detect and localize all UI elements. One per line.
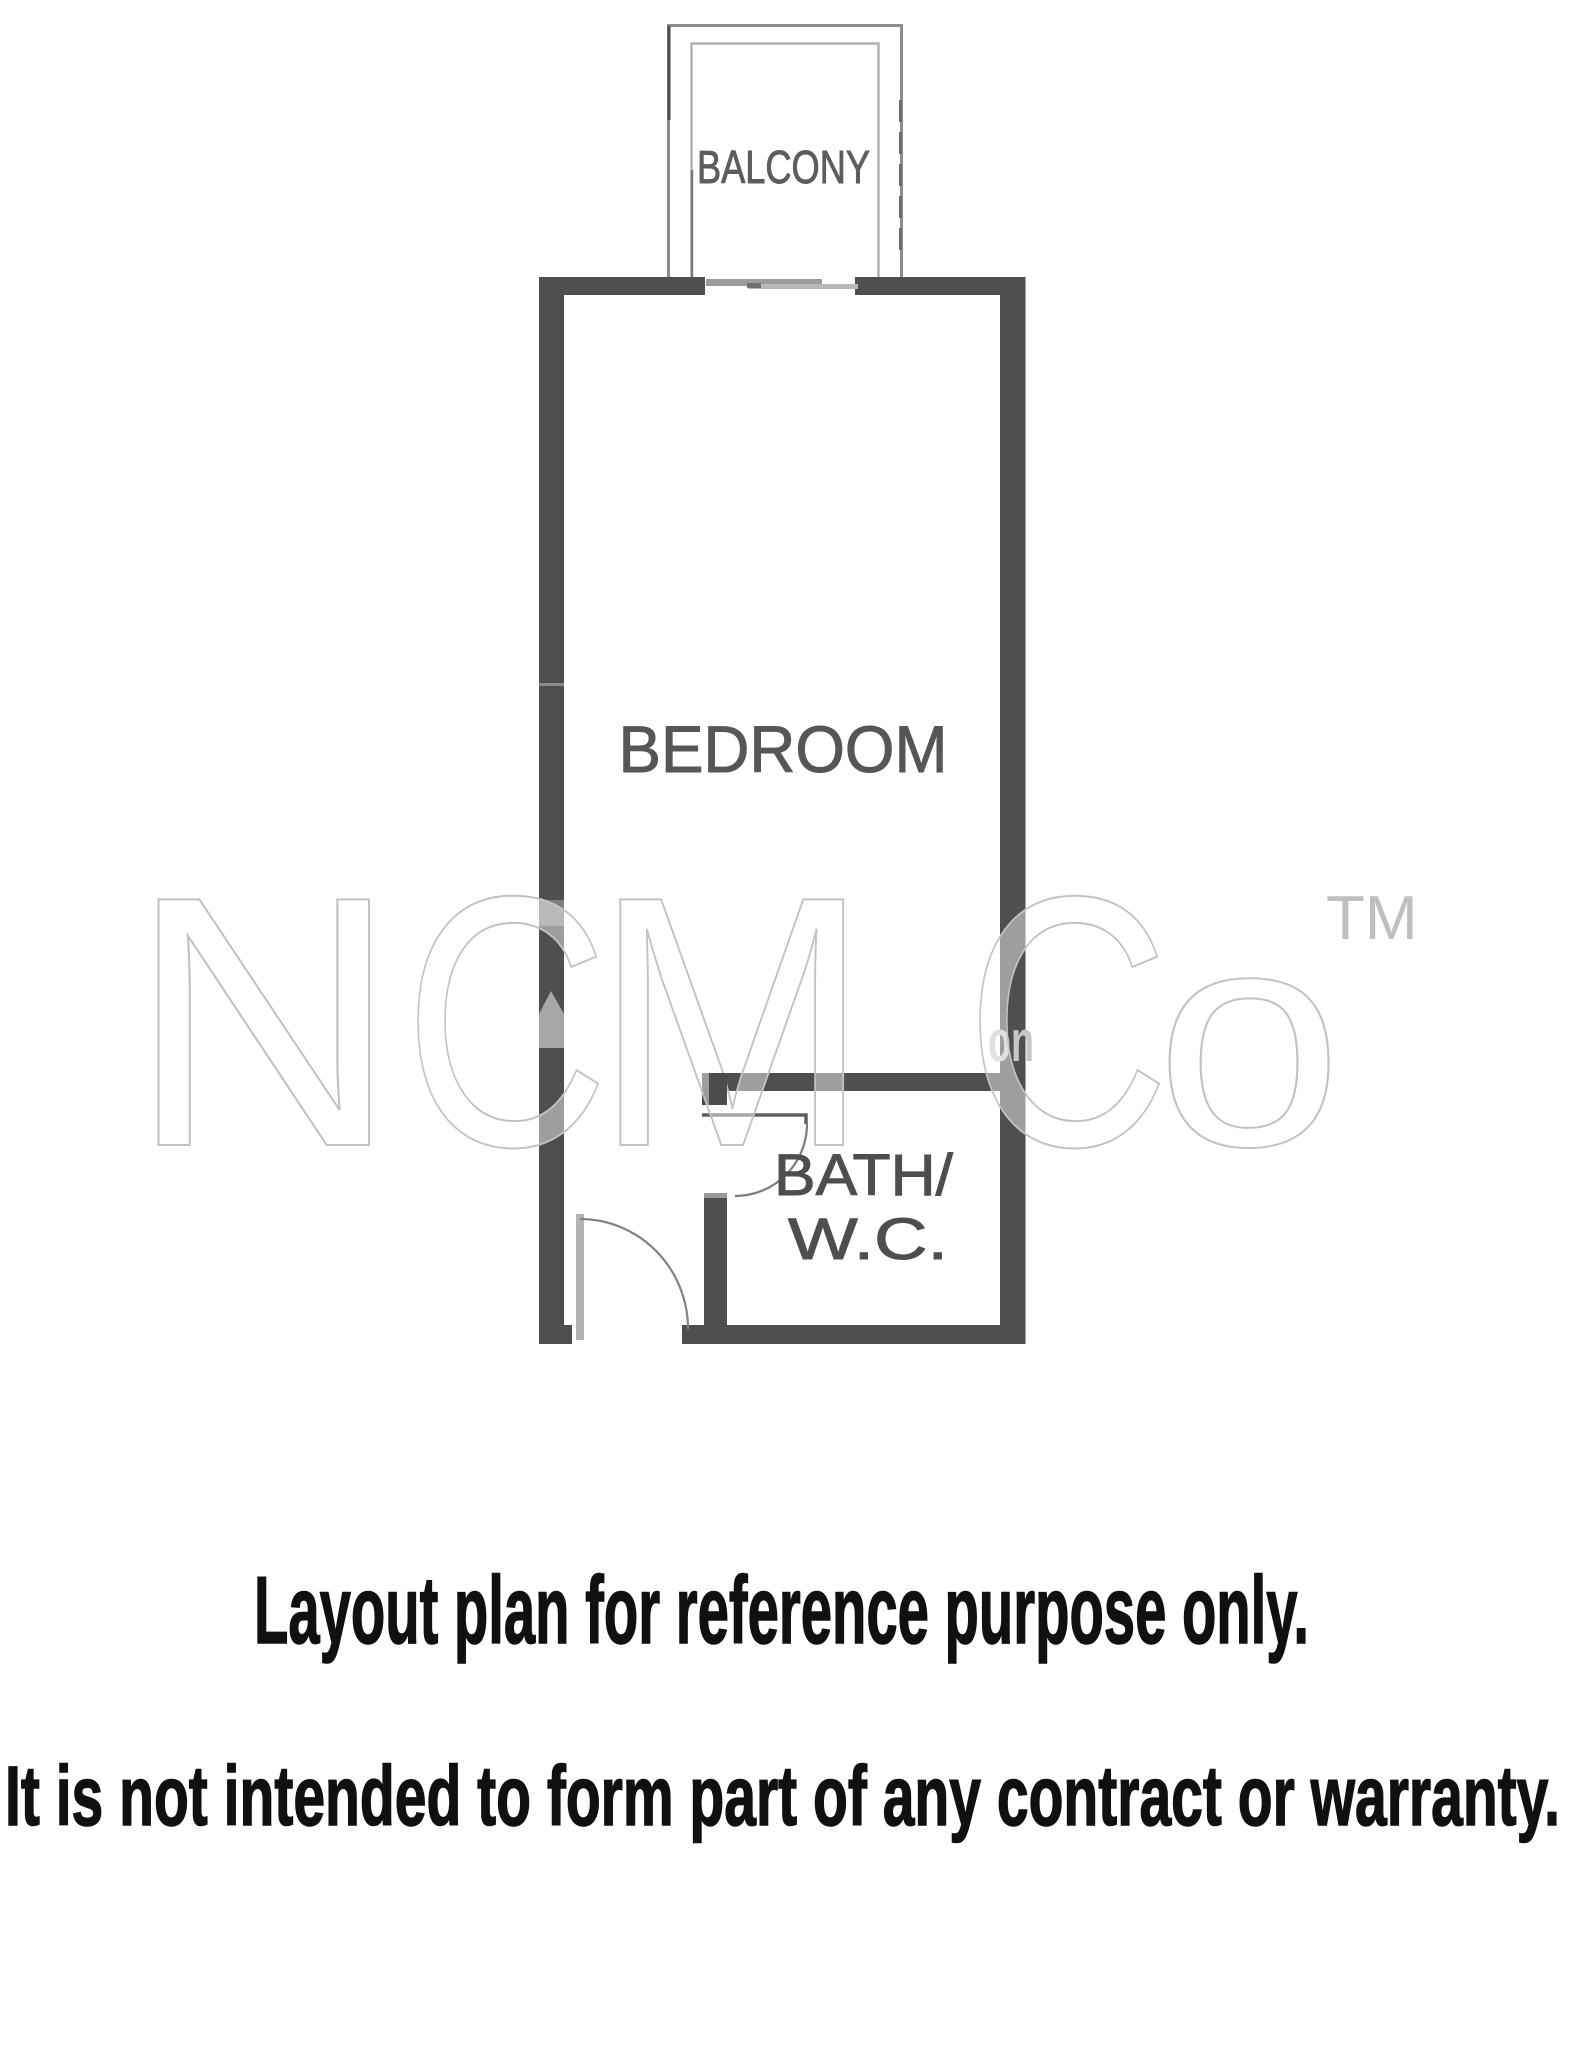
svg-text:BEDROOM: BEDROOM	[619, 712, 948, 786]
svg-text:N: N	[128, 822, 400, 1221]
svg-text:o: o	[1155, 864, 1342, 1211]
svg-text:TM: TM	[1326, 884, 1418, 953]
svg-text:Layout plan for reference purp: Layout plan for reference purpose only.	[254, 1557, 1309, 1664]
svg-text:M: M	[593, 822, 870, 1221]
svg-text:C: C	[404, 823, 609, 1221]
svg-text:C: C	[966, 823, 1170, 1221]
svg-text:BALCONY: BALCONY	[697, 141, 870, 193]
svg-text:It is not intended to form par: It is not intended to form part of any c…	[5, 1749, 1560, 1843]
